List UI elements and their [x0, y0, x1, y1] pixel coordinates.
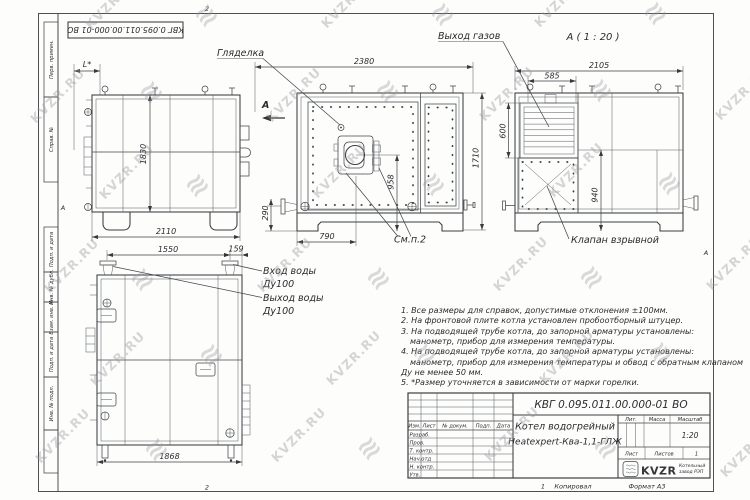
explosion-valve-label: Клапан взрывной: [571, 235, 659, 246]
dim-940: 940: [591, 187, 600, 202]
scale-value: 1:20: [682, 431, 699, 440]
footer-zone: 1: [541, 483, 545, 491]
zone-marker-bottom: 2: [205, 484, 209, 492]
sheet-label: Лист: [624, 451, 639, 457]
side-view: L* 1830 2110: [74, 60, 251, 241]
logo-text: KVZR: [641, 465, 677, 478]
arrowhead-icon: [262, 115, 271, 121]
front-view: 2380 1710 958 790 290 А Гляделка: [217, 48, 486, 246]
water-callouts: Вход воды Ду100 Выход воды Ду100: [113, 265, 324, 318]
lifting-lug-icon: [527, 84, 681, 93]
back-view: 1550 159 1868 Вход воды Ду100 Выход воды…: [86, 245, 324, 467]
note-line: манометр, прибор для измерения температу…: [410, 337, 615, 346]
doc-number-rotated: КВГ 0.095.011.00.000-01 ВО: [67, 25, 184, 34]
side-field: Подп. и дата: [49, 337, 55, 372]
front-view-dimensions: 2380 1710 958 790 290: [255, 57, 486, 246]
see-note-label: См.п.2: [394, 235, 426, 246]
note-line: манометр, прибор для измерения температу…: [410, 358, 743, 367]
lifting-lug-icon: [102, 86, 235, 95]
logo-subtext-1: Котельный: [679, 463, 705, 469]
drawing-sheet: КВГ 0.095.011.00.000-01 ВО Перв. примен.…: [0, 0, 750, 500]
water-inlet-label: Вход воды: [263, 266, 317, 277]
peephole-label: Гляделка: [217, 48, 264, 59]
note-line: 1. Все размеры для справок, допустимые о…: [401, 306, 668, 315]
side-field: Справ. №: [49, 127, 55, 152]
lit-label: Лит.: [624, 417, 637, 423]
foot: [103, 212, 130, 230]
frame-side-strip: Перв. примен. Справ. № Подп. и дата Инв.…: [44, 22, 58, 473]
drawing-canvas: КВГ 0.095.011.00.000-01 ВО Перв. примен.…: [0, 0, 750, 500]
pipes: [503, 196, 699, 210]
bolt-dots: [523, 162, 574, 209]
side-field: Подп. и дата: [49, 232, 55, 267]
kvzr-logo: KVZR Котельный завод РЭП: [623, 462, 705, 478]
explosion-valve-callout: Клапан взрывной: [547, 186, 659, 246]
section-view-a: А ( 1 : 20 ): [438, 31, 698, 246]
col-doc: № докум.: [441, 423, 468, 429]
peephole-callout: Гляделка: [217, 48, 340, 125]
note-line: 4. На подводящей трубе котла, до запорно…: [401, 347, 694, 356]
row-label: Разраб.: [410, 432, 430, 438]
section-view-title: А ( 1 : 20 ): [566, 32, 620, 43]
col-data: Дата: [496, 423, 510, 429]
water-inlet-dn: Ду100: [262, 279, 294, 290]
leg: [102, 445, 108, 458]
sheets-label: Листов: [653, 451, 673, 457]
dim-600: 600: [499, 123, 508, 138]
doc-number: КВГ 0.095.011.00.000-01 ВО: [534, 399, 687, 411]
sheet-frame: КВГ 0.095.011.00.000-01 ВО Перв. примен.…: [39, 5, 714, 492]
dim-length: 2110: [156, 227, 176, 236]
note-line: 2. На фронтовой плите котла установлен п…: [401, 316, 683, 325]
note-line: 5. *Размер уточняется в зависимости от м…: [401, 378, 639, 387]
section-letter: А: [261, 100, 269, 111]
row-label: Утв.: [410, 472, 421, 478]
footer-format: Формат А3: [628, 483, 665, 491]
dim-depth: 2380: [354, 57, 374, 66]
side-fittings: [84, 100, 251, 211]
dim-790: 790: [319, 232, 334, 241]
col-list: Лист: [421, 423, 436, 429]
mass-label: Масса: [649, 417, 666, 423]
footer-margin: 1 Копировал Формат А3: [541, 483, 666, 491]
dim-1868: 1868: [159, 452, 179, 461]
col-podp: Подп.: [476, 423, 492, 429]
fittings: [86, 285, 250, 437]
zone-marker-left: А: [60, 204, 65, 212]
explosion-valve-panel: [518, 158, 578, 213]
col-izm: Изм.: [408, 423, 420, 429]
bolt-dots: [313, 107, 413, 205]
product-name-1: Котел водогрейный: [515, 422, 615, 433]
logo-subtext-2: завод РЭП: [679, 469, 704, 475]
lifting-lug-icon: [320, 84, 456, 93]
leg: [228, 445, 234, 458]
note-line: 3. На подводящей трубе котла, до запорно…: [401, 327, 694, 336]
base-frame: [515, 213, 683, 231]
row-label: Н. контр.: [410, 464, 435, 470]
zone-marker-right: А: [703, 249, 708, 257]
water-outlet-label: Выход воды: [263, 293, 324, 304]
notes: 1. Все размеры для справок, допустимые о…: [400, 306, 743, 387]
side-field: Взам. инв. №: [49, 299, 55, 334]
footer-copied: Копировал: [554, 483, 591, 491]
dim-total-height: 1710: [472, 148, 481, 168]
sheets-value: 1: [695, 451, 698, 457]
gas-outlet-label: Выход газов: [438, 31, 501, 42]
dim-width: 2105: [589, 61, 609, 70]
title-block: Изм. Лист № докум. Подп. Дата Разраб. Пр…: [408, 393, 710, 478]
dim-burner-length: L*: [83, 60, 91, 69]
bolt-dots: [429, 108, 453, 203]
side-view-dimensions: L* 1830 2110: [74, 60, 240, 241]
zone-marker-top: 2: [205, 5, 209, 13]
side-field: Инв. № подл.: [49, 386, 55, 422]
note-line: Ду не менее 50 мм.: [400, 368, 483, 377]
back-view-dimensions: 1550 159 1868: [97, 245, 248, 467]
section-arrow: А: [261, 100, 285, 121]
dim-159: 159: [228, 245, 243, 254]
row-label: Т. контр.: [410, 448, 434, 454]
row-label: Пров.: [410, 440, 425, 446]
water-outlet-dn: Ду100: [262, 306, 294, 317]
dim-1550: 1550: [158, 245, 178, 254]
dim-290: 290: [261, 205, 270, 220]
side-field: Перв. примен.: [49, 40, 55, 79]
row-label: Нач.отд: [410, 456, 432, 462]
dim-585: 585: [544, 72, 559, 81]
peephole-center: [340, 127, 342, 129]
scale-label: Масштаб: [678, 417, 703, 423]
dim-height: 1830: [139, 144, 148, 164]
base-frame: [297, 213, 463, 231]
foot: [210, 212, 237, 230]
product-name-2: Heatexpert-Ква-1,1-ГЛЖ: [508, 438, 622, 448]
